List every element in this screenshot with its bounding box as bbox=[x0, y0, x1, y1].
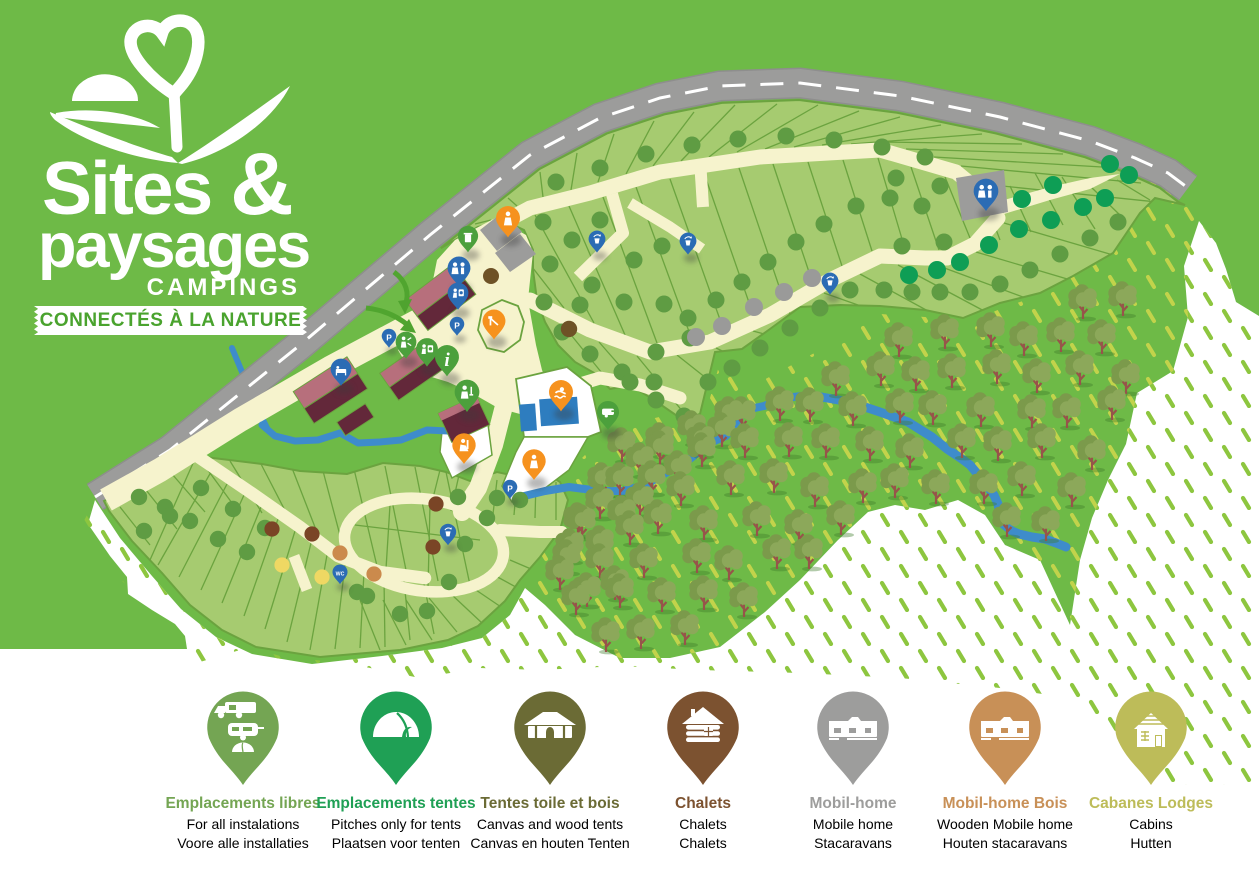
svg-text:P: P bbox=[454, 320, 460, 330]
svg-text:i: i bbox=[444, 350, 450, 371]
svg-text:WC: WC bbox=[336, 571, 345, 577]
svg-text:P: P bbox=[386, 332, 392, 342]
svg-text:P: P bbox=[507, 483, 513, 493]
